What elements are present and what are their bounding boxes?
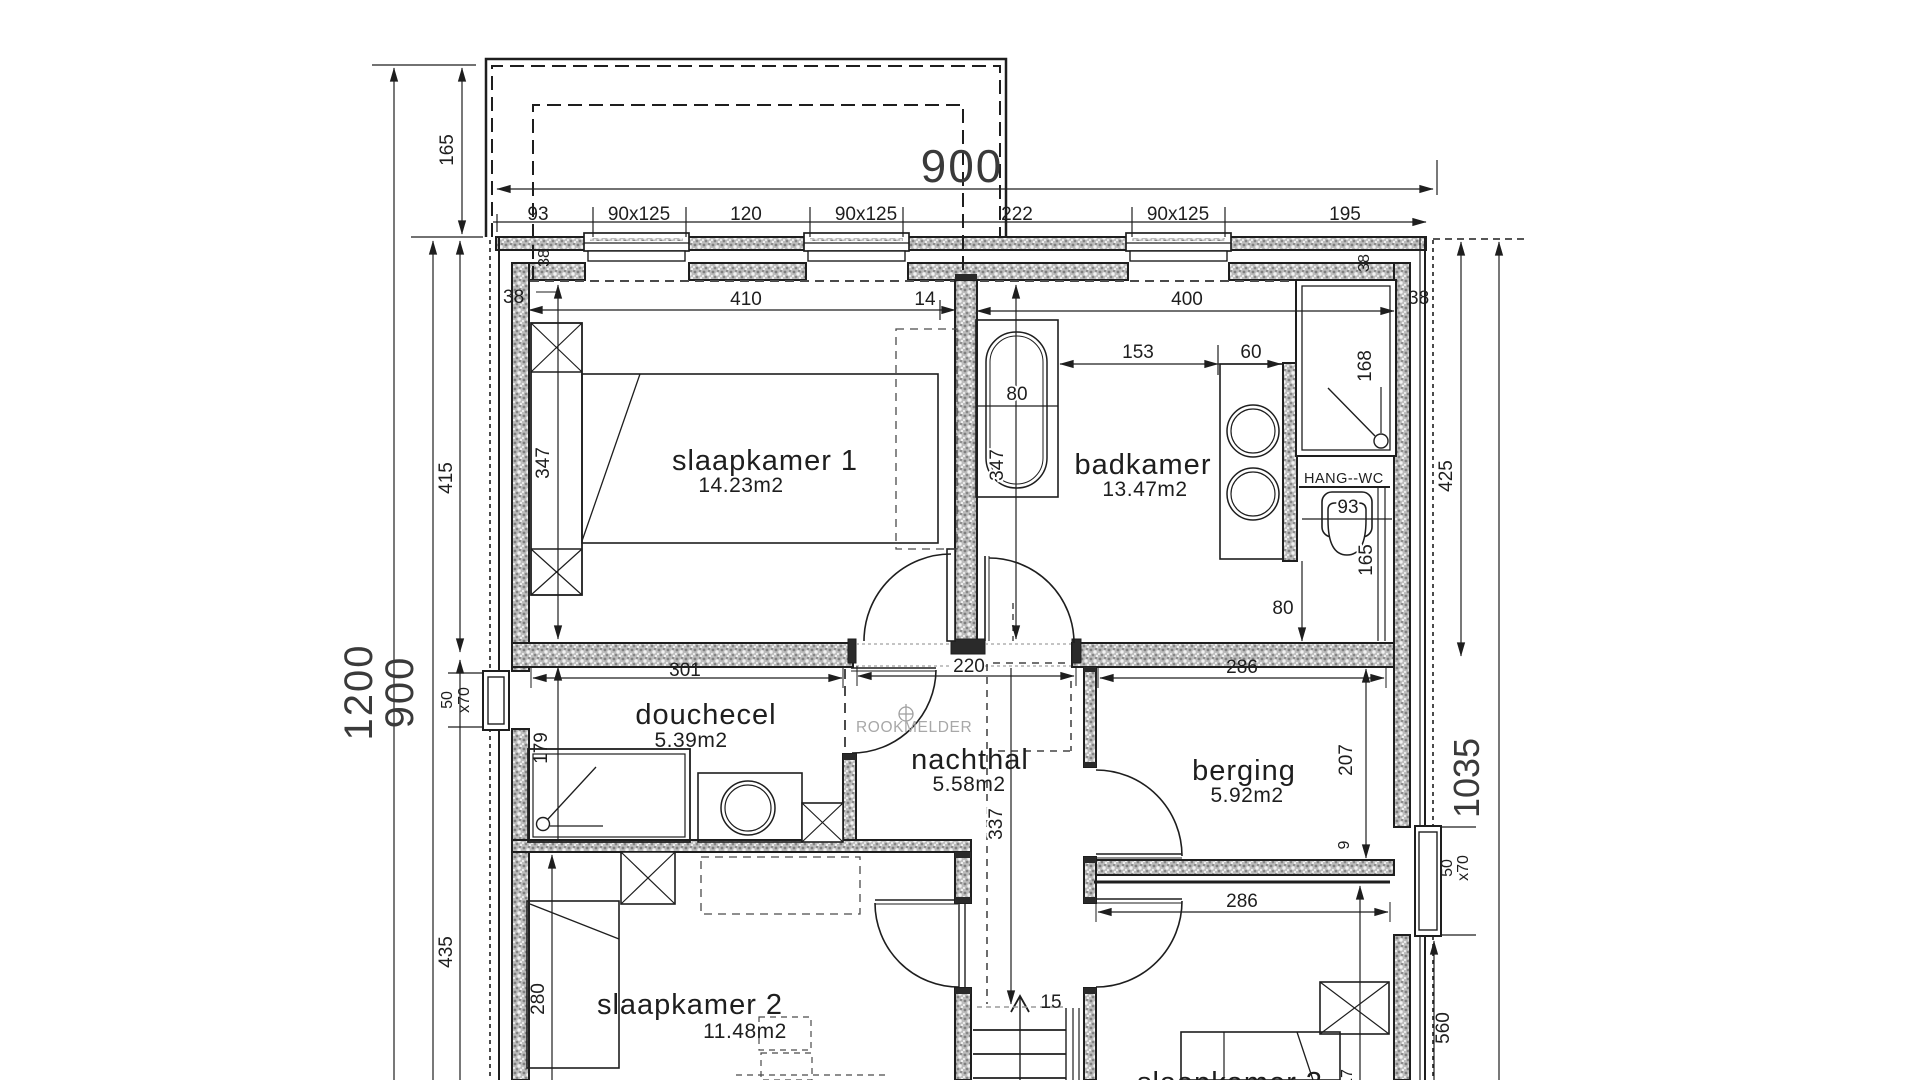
svg-text:ROOKMELDER: ROOKMELDER <box>856 719 972 736</box>
svg-text:5.58m2: 5.58m2 <box>932 773 1005 796</box>
svg-text:165: 165 <box>437 134 458 166</box>
svg-text:179: 179 <box>531 732 552 764</box>
svg-text:90x125: 90x125 <box>835 204 897 225</box>
svg-text:400: 400 <box>1171 289 1203 310</box>
svg-text:38: 38 <box>1408 288 1429 309</box>
svg-text:5.92m2: 5.92m2 <box>1210 784 1283 807</box>
svg-text:80: 80 <box>1006 384 1027 405</box>
svg-text:17: 17 <box>1339 1069 1356 1080</box>
svg-text:1035: 1035 <box>1446 738 1487 818</box>
svg-text:x70: x70 <box>456 687 473 713</box>
svg-text:347: 347 <box>987 449 1008 481</box>
svg-text:5.39m2: 5.39m2 <box>654 729 727 752</box>
svg-text:x70: x70 <box>1455 855 1472 881</box>
svg-text:301: 301 <box>669 660 701 681</box>
svg-text:badkamer: badkamer <box>1075 449 1212 481</box>
svg-text:168: 168 <box>1355 350 1376 382</box>
svg-text:900: 900 <box>378 656 422 729</box>
svg-text:425: 425 <box>1436 460 1457 492</box>
svg-text:207: 207 <box>1336 744 1357 776</box>
svg-text:13.47m2: 13.47m2 <box>1102 478 1187 501</box>
svg-text:93: 93 <box>527 204 548 225</box>
svg-text:HANG--WC: HANG--WC <box>1304 471 1384 487</box>
svg-text:38: 38 <box>1356 254 1373 272</box>
svg-text:15: 15 <box>1040 992 1061 1013</box>
svg-text:280: 280 <box>528 983 549 1015</box>
svg-text:14: 14 <box>914 289 936 310</box>
svg-text:415: 415 <box>436 462 457 494</box>
svg-text:410: 410 <box>730 289 762 310</box>
svg-text:90x125: 90x125 <box>608 204 670 225</box>
svg-text:435: 435 <box>436 936 457 968</box>
svg-text:220: 220 <box>953 656 985 677</box>
svg-text:slaapkamer 3: slaapkamer 3 <box>1137 1067 1323 1080</box>
svg-text:douchecel: douchecel <box>635 699 776 731</box>
svg-text:900: 900 <box>921 140 1004 192</box>
svg-text:slaapkamer 1: slaapkamer 1 <box>672 445 858 477</box>
svg-text:60: 60 <box>1240 342 1261 363</box>
svg-text:286: 286 <box>1226 891 1258 912</box>
svg-text:9: 9 <box>1336 840 1353 849</box>
svg-text:50: 50 <box>1439 859 1456 877</box>
svg-text:347: 347 <box>533 447 554 479</box>
svg-text:560: 560 <box>1433 1012 1454 1044</box>
svg-text:1200: 1200 <box>337 644 381 741</box>
svg-text:nachthal: nachthal <box>911 744 1029 776</box>
svg-text:11.48m2: 11.48m2 <box>703 1020 787 1043</box>
svg-text:337: 337 <box>986 808 1007 840</box>
svg-text:165: 165 <box>1356 544 1377 576</box>
svg-text:153: 153 <box>1122 342 1154 363</box>
svg-text:93: 93 <box>1337 497 1358 518</box>
svg-text:80: 80 <box>1272 598 1293 619</box>
svg-text:38: 38 <box>503 287 524 308</box>
svg-text:14.23m2: 14.23m2 <box>698 474 783 497</box>
svg-text:195: 195 <box>1329 204 1361 225</box>
svg-text:berging: berging <box>1192 755 1296 787</box>
svg-text:90x125: 90x125 <box>1147 204 1209 225</box>
svg-text:slaapkamer 2: slaapkamer 2 <box>597 989 783 1021</box>
svg-text:222: 222 <box>1001 204 1033 225</box>
svg-text:38: 38 <box>536 249 553 267</box>
svg-text:286: 286 <box>1226 657 1258 678</box>
svg-text:120: 120 <box>730 204 762 225</box>
svg-text:50: 50 <box>439 691 456 709</box>
